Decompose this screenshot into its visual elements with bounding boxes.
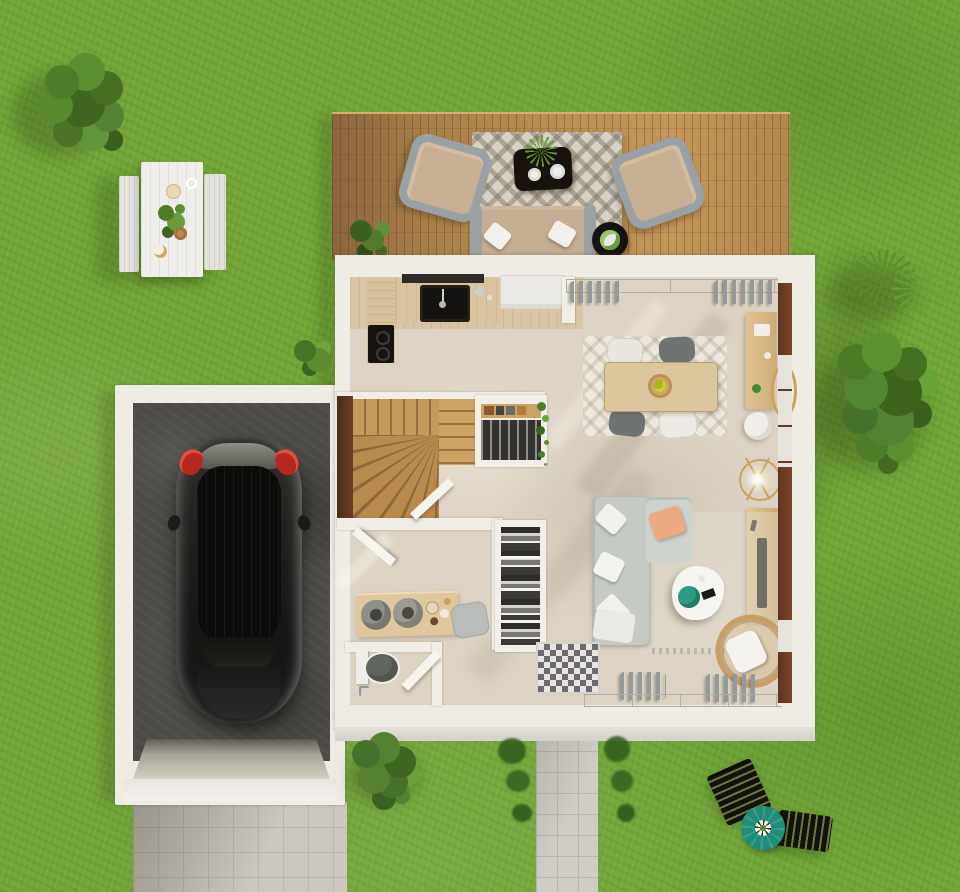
right-window-frame xyxy=(778,283,792,703)
cup xyxy=(528,168,541,181)
wardrobe xyxy=(495,520,546,652)
hanging-plant xyxy=(535,402,551,468)
car-hood xyxy=(196,667,282,719)
cup xyxy=(550,164,565,179)
frame-glass-gap xyxy=(778,620,792,652)
bush-top-left xyxy=(45,65,79,99)
cup xyxy=(698,575,705,582)
dining-chair xyxy=(658,408,698,439)
tree-right xyxy=(862,332,902,372)
box xyxy=(506,406,515,415)
closet-clothes xyxy=(481,420,541,460)
toilet-brush xyxy=(359,686,369,696)
box xyxy=(496,406,504,415)
table-centerpiece xyxy=(648,374,672,398)
closet-shelf xyxy=(481,404,541,418)
side-table-plant xyxy=(600,230,620,250)
garage xyxy=(115,385,345,805)
table-plant xyxy=(525,135,557,167)
parasol-tip xyxy=(760,825,766,831)
bush-bottom-left xyxy=(352,740,380,768)
shelf-line xyxy=(499,620,542,623)
walkway-shadow xyxy=(536,730,598,892)
plant-teal xyxy=(678,586,700,608)
sofa-armrest xyxy=(470,204,482,259)
stairs-brown-wall xyxy=(337,396,353,522)
kitchen-sink xyxy=(420,285,470,322)
bottom-glass-wall xyxy=(584,694,782,707)
box xyxy=(517,406,526,415)
plate xyxy=(426,601,439,614)
utility-chair xyxy=(449,600,490,640)
plate xyxy=(154,245,167,258)
stairs-right-flight xyxy=(439,399,477,465)
parasol xyxy=(741,806,785,850)
entry-tiles xyxy=(536,642,600,694)
deck-shrub xyxy=(350,220,372,242)
kitchen-hood-strip xyxy=(402,274,484,283)
bush-kitchen-side xyxy=(294,340,316,362)
dining-chair xyxy=(608,408,647,438)
magazine xyxy=(701,588,716,600)
cooktop xyxy=(368,325,394,363)
sprig xyxy=(537,402,546,411)
plate xyxy=(166,184,181,199)
appliance xyxy=(754,324,770,336)
shelf-line xyxy=(499,556,542,559)
burner xyxy=(376,347,390,361)
house xyxy=(335,255,815,730)
picnic-bench-right xyxy=(204,174,226,270)
bowl xyxy=(430,617,438,625)
curtain-bunch xyxy=(570,281,620,303)
driveway-shadow xyxy=(133,802,347,892)
table-plant xyxy=(158,205,174,221)
box xyxy=(484,406,494,415)
utility-table xyxy=(355,591,458,638)
curtain-bunch xyxy=(714,280,774,304)
car xyxy=(176,437,302,723)
wall-stairs-bottom xyxy=(337,518,503,530)
bowl xyxy=(174,227,187,240)
kettle xyxy=(475,287,484,296)
car-roof-glass xyxy=(197,466,281,644)
stairs-upper-flight xyxy=(353,399,439,437)
wardrobe-clothes xyxy=(501,527,540,645)
bowl xyxy=(444,598,451,605)
floor-plan-render xyxy=(0,0,960,892)
walkway-shrubs-right xyxy=(604,736,630,762)
shelf-line xyxy=(499,588,542,591)
ornamental-grass xyxy=(892,264,952,314)
dining-chair xyxy=(658,336,696,364)
tile-overlay xyxy=(538,644,598,692)
picnic-bench-left xyxy=(119,176,139,272)
plate xyxy=(186,178,197,189)
garage-ramp xyxy=(133,735,330,779)
lamp-bulb xyxy=(751,473,764,486)
faucet-base xyxy=(439,301,446,308)
picnic-set xyxy=(110,155,240,285)
sideboard-plant xyxy=(752,384,761,393)
tall-cabinet xyxy=(500,275,565,309)
toilet-bowl xyxy=(364,652,400,684)
jar xyxy=(764,352,771,359)
house-apron xyxy=(335,727,815,741)
food xyxy=(654,380,666,392)
plate xyxy=(440,609,449,618)
sofa-blanket xyxy=(592,608,636,643)
sun-corner xyxy=(705,755,835,860)
garage-door-band xyxy=(123,779,337,801)
burner xyxy=(376,331,390,345)
terrace-deck xyxy=(332,112,790,259)
frame-glass-gap xyxy=(778,355,792,467)
floor-lamp xyxy=(737,457,781,503)
pouf xyxy=(744,412,772,440)
walkway-shrubs-left xyxy=(498,738,526,764)
